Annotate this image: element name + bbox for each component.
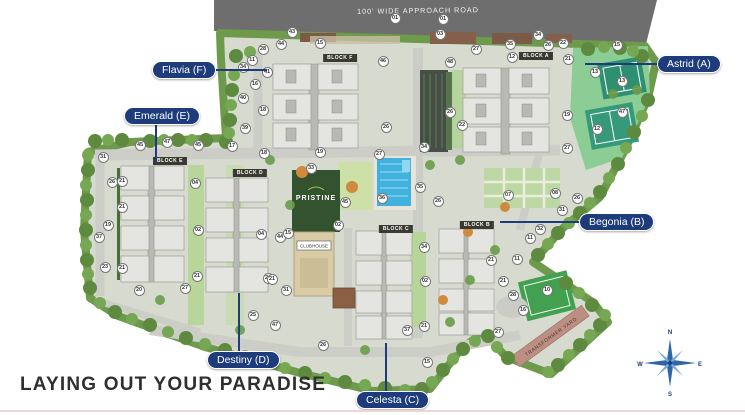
unit-marker: 27 <box>493 327 504 338</box>
callout-line <box>585 63 657 65</box>
unit-marker: 07 <box>503 190 514 201</box>
unit-marker: 39 <box>240 123 251 134</box>
unit-marker: 26 <box>543 40 554 51</box>
callout-pill: Begonia (B) <box>579 213 654 231</box>
unit-marker: 12 <box>507 52 518 63</box>
unit-marker: 32 <box>535 224 546 235</box>
unit-marker: 47 <box>162 137 173 148</box>
unit-marker: 27 <box>562 143 573 154</box>
unit-marker: 19 <box>315 147 326 158</box>
unit-marker: 27 <box>180 283 191 294</box>
unit-marker: 26 <box>433 196 444 207</box>
unit-marker: 02 <box>333 220 344 231</box>
block-label: BLOCK C <box>379 225 413 233</box>
unit-marker: 45 <box>340 197 351 208</box>
unit-marker: 35 <box>505 39 516 50</box>
unit-marker: 27 <box>471 44 482 55</box>
unit-marker: 02 <box>193 225 204 236</box>
unit-marker: 21 <box>563 54 574 65</box>
unit-marker: 33 <box>306 163 317 174</box>
block-label: BLOCK B <box>460 221 494 229</box>
unit-marker: 16 <box>250 79 261 90</box>
page-title: LAYING OUT YOUR PARADISE <box>20 374 326 396</box>
unit-marker: 21 <box>117 263 128 274</box>
unit-marker: 40 <box>238 93 249 104</box>
callout-line <box>500 221 579 223</box>
unit-marker: 01 <box>438 14 449 25</box>
unit-marker: 22 <box>558 38 569 49</box>
unit-marker: 31 <box>98 152 109 163</box>
unit-marker: 08 <box>550 188 561 199</box>
unit-marker: 25 <box>248 310 259 321</box>
unit-marker: 31 <box>281 285 292 296</box>
unit-marker: 22 <box>457 120 468 131</box>
unit-marker: 34 <box>238 62 249 73</box>
map-overlay: 0101034344281115344116401839461926274547… <box>0 0 745 415</box>
unit-marker: 26 <box>318 340 329 351</box>
unit-marker: 45 <box>193 140 204 151</box>
bottom-divider <box>0 410 745 412</box>
callout-line <box>216 69 267 71</box>
unit-marker: 18 <box>258 105 269 116</box>
unit-marker: 21 <box>117 176 128 187</box>
unit-marker: 34 <box>419 242 430 253</box>
unit-marker: 11 <box>525 233 536 244</box>
unit-marker: 26 <box>107 177 118 188</box>
unit-marker: 21 <box>267 274 278 285</box>
unit-marker: 48 <box>445 57 456 68</box>
unit-marker: 35 <box>415 182 426 193</box>
unit-marker: 28 <box>258 44 269 55</box>
unit-marker: 21 <box>486 255 497 266</box>
unit-marker: 21 <box>498 276 509 287</box>
unit-marker: 04 <box>190 178 201 189</box>
site-plan-page: 100' WIDE APPROACH ROAD <box>0 0 745 415</box>
callout-pill: Celesta (C) <box>356 391 429 409</box>
unit-marker: 19 <box>562 110 573 121</box>
unit-marker: 47 <box>270 320 281 331</box>
unit-marker: 28 <box>508 290 519 301</box>
unit-marker: 03 <box>435 29 446 40</box>
unit-marker: 15 <box>315 38 326 49</box>
unit-marker: 37 <box>402 325 413 336</box>
unit-marker: 20 <box>134 285 145 296</box>
block-label: BLOCK E <box>153 157 187 165</box>
unit-marker: 26 <box>572 193 583 204</box>
callout-pill: Astrid (A) <box>657 55 721 73</box>
unit-marker: 47 <box>617 107 628 118</box>
unit-marker: 46 <box>378 56 389 67</box>
unit-marker: 04 <box>256 229 267 240</box>
unit-marker: 15 <box>283 228 294 239</box>
unit-marker: 44 <box>276 39 287 50</box>
unit-marker: 10 <box>542 285 553 296</box>
callout-pill: Emerald (E) <box>124 107 200 125</box>
unit-marker: 16 <box>518 305 529 316</box>
unit-marker: 21 <box>419 321 430 332</box>
unit-marker: 45 <box>135 140 146 151</box>
unit-marker: 18 <box>259 148 270 159</box>
callout-pill: Flavia (F) <box>152 61 216 79</box>
unit-marker: 31 <box>557 205 568 216</box>
unit-marker: 15 <box>612 40 623 51</box>
unit-marker: 37 <box>94 232 105 243</box>
block-label: BLOCK F <box>323 54 357 62</box>
callout-line <box>238 293 240 351</box>
unit-marker: 13 <box>617 76 628 87</box>
unit-marker: 21 <box>192 271 203 282</box>
unit-marker: 02 <box>420 276 431 287</box>
unit-marker: 26 <box>381 122 392 133</box>
unit-marker: 27 <box>374 149 385 160</box>
block-label: BLOCK A <box>519 52 553 60</box>
unit-marker: 11 <box>512 254 523 265</box>
unit-marker: 21 <box>117 202 128 213</box>
callout-line <box>385 343 387 391</box>
unit-marker: 23 <box>100 262 111 273</box>
block-label: BLOCK D <box>233 169 267 177</box>
unit-marker: 26 <box>445 107 456 118</box>
unit-marker: 34 <box>419 142 430 153</box>
unit-marker: 15 <box>422 357 433 368</box>
unit-marker: 41 <box>262 67 273 78</box>
unit-marker: 13 <box>590 67 601 78</box>
callout-pill: Destiny (D) <box>207 351 280 369</box>
callout-line <box>155 125 157 163</box>
unit-marker: 19 <box>103 220 114 231</box>
unit-marker: 34 <box>533 30 544 41</box>
unit-marker: 01 <box>390 13 401 24</box>
unit-marker: 36 <box>377 193 388 204</box>
unit-marker: 43 <box>287 27 298 38</box>
unit-marker: 17 <box>227 141 238 152</box>
unit-marker: 12 <box>592 124 603 135</box>
